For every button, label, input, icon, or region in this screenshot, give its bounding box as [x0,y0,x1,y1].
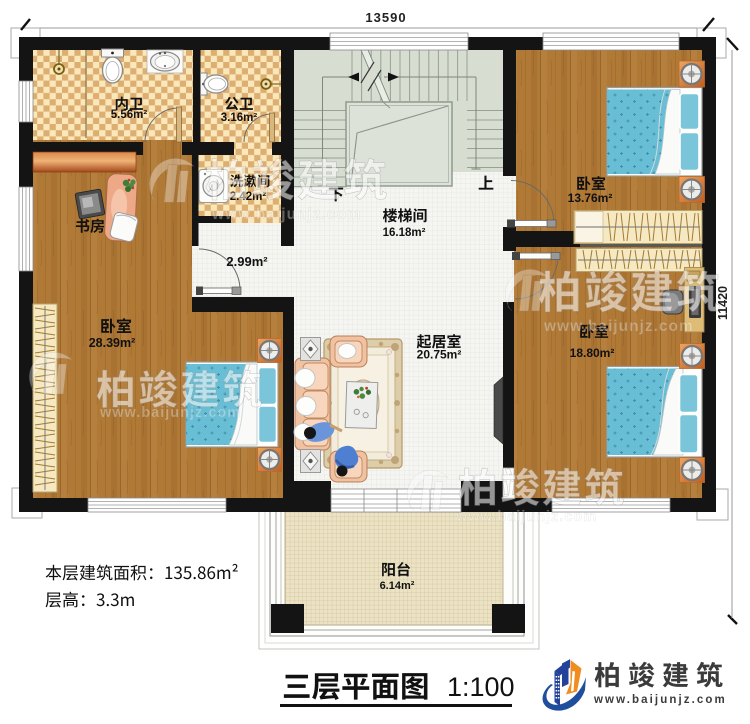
svg-text:6.14m²: 6.14m² [380,580,415,592]
svg-text:13590: 13590 [365,10,406,25]
svg-text:www.baijunjz.com: www.baijunjz.com [455,509,597,525]
svg-text:1:100: 1:100 [447,672,515,702]
svg-text:16.18m²: 16.18m² [383,227,426,239]
svg-text:www.baijunjz.com: www.baijunjz.com [99,405,241,421]
svg-text:20.75m²: 20.75m² [417,348,462,362]
svg-text:www.baijunjz.com: www.baijunjz.com [211,206,362,223]
svg-text:11420: 11420 [716,286,730,320]
svg-text:13.76m²: 13.76m² [568,191,613,205]
svg-text:2.99m²: 2.99m² [226,254,268,269]
svg-text:www.baijunjz.com: www.baijunjz.com [593,694,727,706]
svg-text:5.56m²: 5.56m² [111,109,148,121]
svg-text:www.baijunjz.com: www.baijunjz.com [543,318,694,335]
svg-text:3.16m²: 3.16m² [221,112,258,124]
svg-text:18.80m²: 18.80m² [570,346,615,360]
svg-text:28.39m²: 28.39m² [89,336,136,350]
